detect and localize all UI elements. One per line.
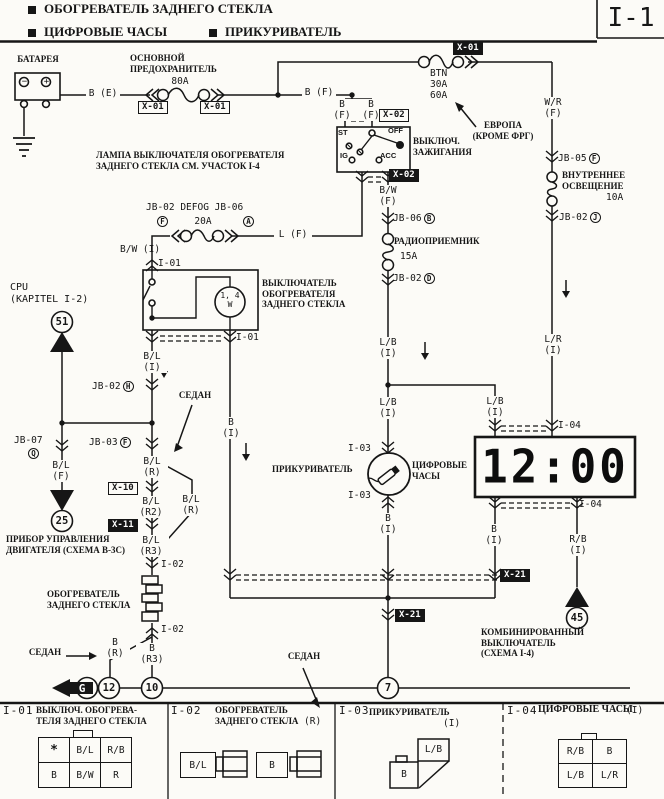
pin-cell: R	[101, 763, 132, 788]
defog-fuse-label: JB-02 DEFOG JB-06	[146, 202, 243, 213]
terminal-10: 10	[142, 683, 163, 694]
jb-circle-a-defog: A	[243, 216, 254, 227]
cpu-label: CPU (KAPITEL I-2)	[10, 282, 88, 306]
main-fuse-label: ОСНОВНОЙ ПРЕДОХРАНИТЕЛЬ	[130, 53, 217, 74]
page-code: I-1	[600, 2, 662, 34]
connector-label-i04-bottom: I-04	[579, 499, 602, 510]
pin-cell: B	[593, 740, 627, 764]
jb02-text-d: JB-02	[393, 273, 422, 284]
ignition-pos-st: ST	[338, 129, 348, 137]
terminal-51: 51	[52, 317, 73, 328]
wire-label-blr3: B/L (R3)	[133, 535, 169, 557]
jb02-text: JB-02	[92, 381, 121, 392]
pin-cell: B/L	[70, 738, 101, 763]
connector-label-i03-bottom: I-03	[348, 490, 371, 501]
jb02-d-label: JB-02D	[393, 273, 435, 284]
pin-cell: B	[39, 763, 70, 788]
header-bullet-2	[28, 29, 36, 37]
lighter-label: ПРИКУРИВАТЕЛЬ	[272, 464, 353, 475]
jb-circle-f-jb03: F	[120, 437, 131, 448]
header-item-rear-defogger: ОБОГРЕВАТЕЛЬ ЗАДНЕГО СТЕКЛА	[44, 1, 273, 16]
connector-label-x02-b: X-02	[389, 169, 419, 182]
connector-label-i01-top: I-01	[158, 258, 181, 269]
heater-element-symbol	[142, 576, 162, 621]
panel-i04-tag: (I)	[626, 705, 643, 716]
connector-label-x11: X-11	[108, 519, 138, 532]
jb-circle-j: J	[590, 212, 601, 223]
panel-i04-title: ЦИФРОВЫЕ ЧАСЫ	[538, 705, 633, 716]
radio-label: РАДИОПРИЕМНИК	[394, 236, 480, 247]
wire-label-lf: L (F)	[274, 229, 312, 240]
jb02-j-label: JB-02J	[559, 212, 601, 223]
connector-label-i04-top: I-04	[558, 420, 581, 431]
panel-i03-tag: (I)	[443, 718, 460, 729]
panel-i01-pin-table: * B/L R/B B B/W R	[38, 737, 132, 788]
connector-label-i03-top: I-03	[348, 443, 371, 454]
wire-label-lbi-2: L/B (I)	[372, 397, 404, 419]
terminal-12: 12	[99, 683, 120, 694]
sedan-note-3: СЕДАН	[283, 651, 325, 662]
defog-fuse-symbol	[172, 230, 238, 242]
panel-i03-title: ПРИКУРИВАТЕЛЬ	[369, 707, 450, 718]
pin-cell: L/B	[559, 764, 593, 788]
sedan-note-2: СЕДАН	[24, 647, 66, 658]
ignition-pos-acc: ACC	[380, 152, 396, 160]
wire-label-br: B (R)	[100, 637, 130, 659]
jb02-text-j: JB-02	[559, 212, 588, 223]
battery-label: БАТАРЕЯ	[15, 54, 61, 65]
ground-g-letter: G	[70, 682, 94, 695]
wire-label-wr: W/R (F)	[537, 97, 569, 119]
panel-i04-code: I-04	[507, 705, 538, 717]
panel-i02-code: I-02	[171, 705, 202, 717]
ignition-switch-label: ВЫКЛЮЧ. ЗАЖИГАНИЯ	[413, 136, 472, 157]
ground-icon	[13, 138, 35, 156]
interior-light-rating: 10A	[606, 192, 623, 203]
jb-circle-b: B	[424, 213, 435, 224]
jb03-f-label: JB-03F	[89, 437, 131, 448]
ecu-label: ПРИБОР УПРАВЛЕНИЯ ДВИГАТЕЛЯ (СХЕМА B-3C)	[6, 534, 125, 555]
wire-label-bli: B/L (I)	[137, 351, 167, 373]
jb-circle-h: H	[123, 381, 134, 392]
connector-label-x01-b: X-01	[200, 101, 230, 114]
connector-label-x02-a: X-02	[379, 109, 409, 122]
jb06-text: JB-06	[393, 213, 422, 224]
wiring-diagram-page: ОБОГРЕВАТЕЛЬ ЗАДНЕГО СТЕКЛА ЦИФРОВЫЕ ЧАС…	[0, 0, 664, 799]
ignition-pos-off: OFF	[388, 127, 403, 135]
jb07-label: JB-07	[14, 435, 43, 446]
jb-circle-f-defog: F	[157, 216, 168, 227]
connector-chevrons	[56, 110, 583, 639]
panel-connector-shapes	[216, 739, 449, 788]
wire-label-lbi-1: L/B (I)	[372, 337, 404, 359]
connector-dashed-ties	[160, 116, 571, 580]
wire-label-blr2: B/L (R2)	[133, 496, 169, 518]
pin-cell: L/R	[593, 764, 627, 788]
main-fuse-rating: 80A	[167, 76, 193, 87]
wire-label-blr-1: B/L (R)	[136, 456, 168, 478]
jb05-text: JB-05	[558, 153, 587, 164]
ignition-pos-ig: IG	[340, 152, 348, 160]
panel-i01-title: ВЫКЛЮЧ. ОБОГРЕВА- ТЕЛЯ ЗАДНЕГО СТЕКЛА	[36, 705, 147, 726]
header-bullet-1	[28, 6, 36, 14]
panel-i03-code: I-03	[339, 705, 370, 717]
pin-cell: *	[39, 738, 70, 763]
panel-i02-tag: (R)	[304, 716, 321, 727]
header-item-lighter: ПРИКУРИВАТЕЛЬ	[225, 24, 341, 39]
wire-label-lri: L/R (I)	[536, 334, 570, 356]
wire-label-bi-1: B (I)	[217, 417, 245, 439]
defog-fuse-rating: 20A	[190, 216, 216, 227]
jb03-text: JB-03	[89, 437, 118, 448]
wire-label-be: B (E)	[86, 88, 120, 99]
connector-label-x01-a: X-01	[138, 101, 168, 114]
jb-circle-d: D	[424, 273, 435, 284]
heater-element-label: ОБОГРЕВАТЕЛЬ ЗАДНЕГО СТЕКЛА	[47, 589, 130, 610]
wire-label-lbi-3: L/B (I)	[479, 396, 511, 418]
radio-fuse-rating: 15A	[400, 251, 417, 262]
jb-circle-q: Q	[28, 448, 39, 459]
wire-label-bi-3: B (I)	[480, 524, 508, 546]
btn-fuse-label: BTN 30A 60A	[430, 68, 447, 101]
pin-cell: R/B	[559, 740, 593, 764]
wire-label-bi-2: B (I)	[374, 513, 402, 535]
clock-label: ЦИФРОВЫЕ ЧАСЫ	[412, 460, 467, 481]
terminal-45: 45	[567, 613, 588, 624]
wire-label-blf: B/L (F)	[45, 460, 77, 482]
connector-label-i02-top: I-02	[161, 559, 184, 570]
wire-label-rbi: R/B (I)	[560, 534, 596, 556]
panel-i02-pin-1: B/L	[180, 752, 216, 778]
radio-fuse-symbol	[383, 234, 394, 271]
terminal-25: 25	[52, 516, 73, 527]
rear-switch-label: ВЫКЛЮЧАТЕЛЬ ОБОГРЕВАТЕЛЯ ЗАДНЕГО СТЕКЛА	[262, 278, 345, 310]
lamp-note: ЛАМПА ВЫКЛЮЧАТЕЛЯ ОБОГРЕВАТЕЛЯ ЗАДНЕГО С…	[96, 150, 284, 171]
panel-i01-code: I-01	[3, 705, 34, 717]
connector-label-i01-bottom: I-01	[236, 332, 259, 343]
battery-minus: −	[20, 77, 30, 88]
wire-label-bwi: B/W (I)	[120, 244, 160, 255]
panel-i02-pin-2: B	[256, 752, 288, 778]
cigarette-lighter-icon	[368, 453, 410, 495]
wire-label-br3: B (R3)	[136, 643, 168, 665]
battery-plus: +	[42, 77, 52, 88]
sedan-note-1: СЕДАН	[174, 390, 216, 401]
wire-label-blr-bypass: B/L (R)	[175, 494, 207, 516]
jb-circle-f-jb05: F	[589, 153, 600, 164]
pin-cell: B/W	[70, 763, 101, 788]
jb05-f-label: JB-05F	[558, 153, 600, 164]
header-bullet-3	[209, 29, 217, 37]
interior-light-fuse-symbol	[547, 172, 557, 206]
panel-i02-title: ОБОГРЕВАТЕЛЬ ЗАДНЕГО СТЕКЛА	[215, 705, 298, 726]
connector-label-x21-a: X-21	[500, 569, 530, 582]
panel-i03-pin-2: B	[390, 769, 418, 780]
connector-label-x10: X-10	[108, 482, 138, 495]
jb02-h-label: JB-02H	[92, 381, 134, 392]
pin-cell: R/B	[101, 738, 132, 763]
combo-switch-label: КОМБИНИРОВАННЫЙ ВЫКЛЮЧАТЕЛЬ (СХЕМА I-4)	[481, 627, 584, 659]
jb06-b-label: JB-06B	[393, 213, 435, 224]
header-item-digital-clock: ЦИФРОВЫЕ ЧАСЫ	[44, 24, 167, 39]
wire-label-bf: B (F)	[302, 87, 336, 98]
connector-label-x21-b: X-21	[395, 609, 425, 622]
lamp-wattage: 1, 4 W	[215, 291, 245, 309]
main-fuse-symbol	[146, 88, 224, 102]
panel-i04-pin-table: R/B B L/B L/R	[558, 739, 627, 788]
connector-label-x01-c: X-01	[453, 42, 483, 55]
wire-label-bwf: B/W (F)	[372, 185, 404, 207]
panel-i03-pin-1: L/B	[418, 744, 449, 755]
clock-display: 12:00	[475, 436, 635, 499]
wire-label-bf-1: B (F)	[327, 99, 357, 121]
interior-light-label: ВНУТРЕННЕЕ ОСВЕЩЕНИЕ	[562, 170, 625, 191]
europe-note: ЕВРОПА (КРОМЕ ФРГ)	[462, 120, 544, 141]
connector-label-i02-bottom: I-02	[161, 624, 184, 635]
terminal-7: 7	[378, 683, 399, 694]
